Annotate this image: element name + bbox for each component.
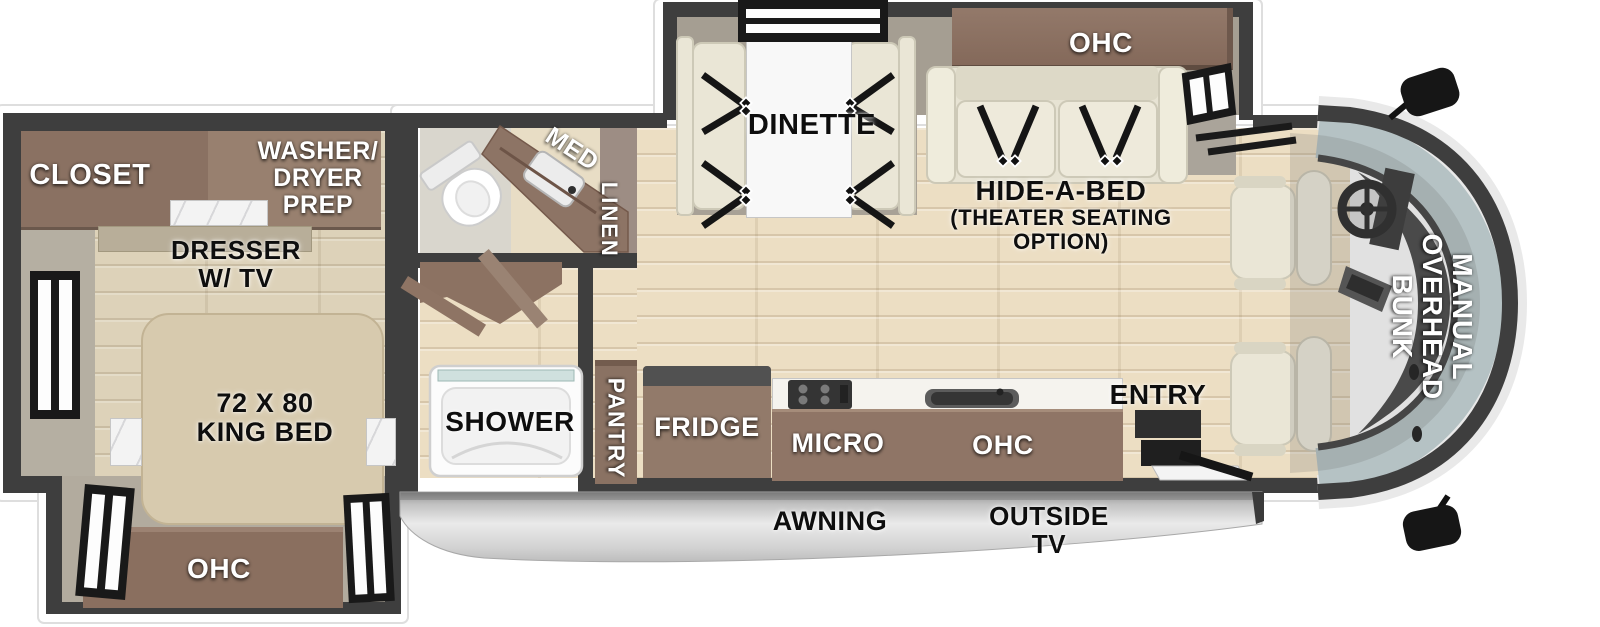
entry-steps: [1135, 410, 1252, 480]
label-micro: MICRO: [768, 429, 908, 458]
label-overhead-bunk: MANUAL OVERHEAD BUNK: [1387, 197, 1477, 437]
cooktop-burners: [799, 385, 849, 405]
label-hide-a-bed: HIDE-A-BED: [936, 176, 1186, 206]
front-window-sill: [1196, 126, 1296, 152]
label-pantry: PANTRY: [604, 373, 629, 483]
sofa-seatbelts: [980, 106, 1138, 158]
label-entry: ENTRY: [1083, 380, 1233, 410]
sink-faucet: [997, 389, 1004, 396]
faucet: [568, 186, 576, 194]
label-dinette: DINETTE: [717, 110, 907, 141]
label-king-bed: 72 X 80 KING BED: [150, 389, 380, 447]
label-living-ohc: OHC: [1036, 28, 1166, 58]
label-awning: AWNING: [755, 507, 905, 536]
label-closet: CLOSET: [25, 160, 155, 191]
label-kitchen-ohc: OHC: [940, 431, 1066, 460]
label-outside-tv: OUTSIDE TV: [974, 503, 1124, 559]
rv-floorplan: CLOSET WASHER/ DRYER PREP DRESSER W/ TV …: [0, 0, 1600, 627]
label-fridge: FRIDGE: [637, 413, 777, 442]
dinette-seatbelts: [703, 75, 893, 226]
label-washer-dryer-prep: WASHER/ DRYER PREP: [243, 138, 393, 218]
bath-wardrobe: [401, 249, 562, 337]
label-dresser-tv: DRESSER W/ TV: [136, 237, 336, 293]
label-shower: SHOWER: [420, 407, 600, 437]
side-mirror-top: [1390, 64, 1463, 119]
label-bedroom-ohc: OHC: [154, 554, 284, 584]
shower-glass: [438, 370, 574, 381]
side-mirror-bottom: [1400, 496, 1463, 553]
sofa-belt-buckles: [997, 155, 1122, 166]
label-linen: LINEN: [597, 170, 621, 270]
label-theater-option: (THEATER SEATING OPTION): [911, 206, 1211, 253]
